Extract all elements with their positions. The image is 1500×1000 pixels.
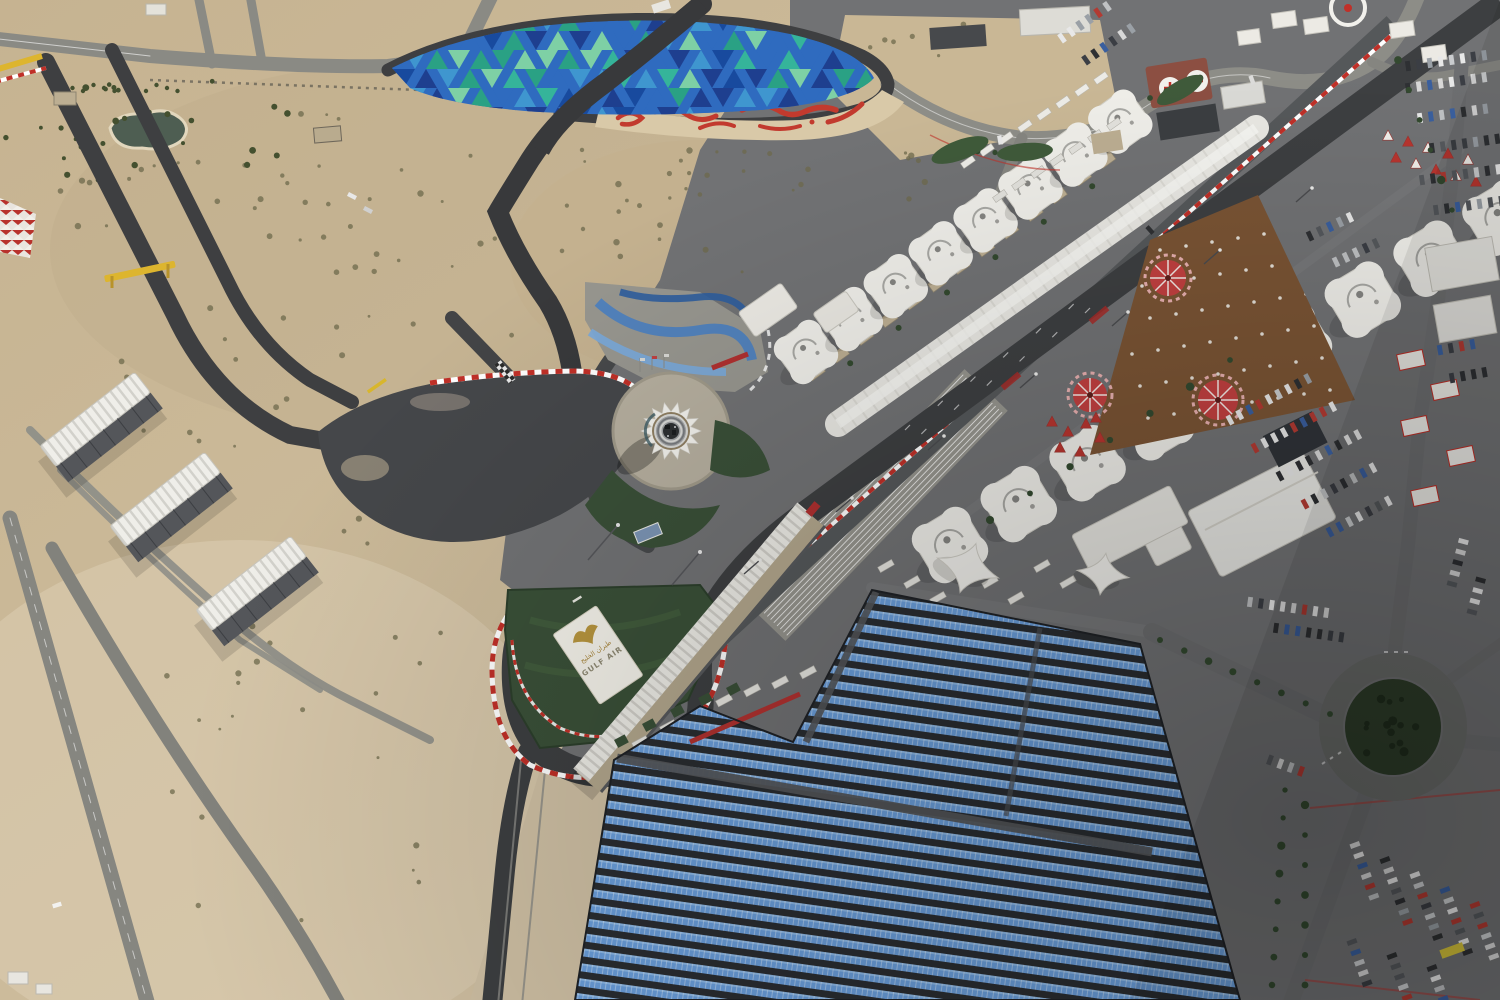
aerial-photo-bahrain-circuit: طيران الخليج GULF AIR [0, 0, 1500, 1000]
scene-canvas: طيران الخليج GULF AIR [0, 0, 1500, 1000]
